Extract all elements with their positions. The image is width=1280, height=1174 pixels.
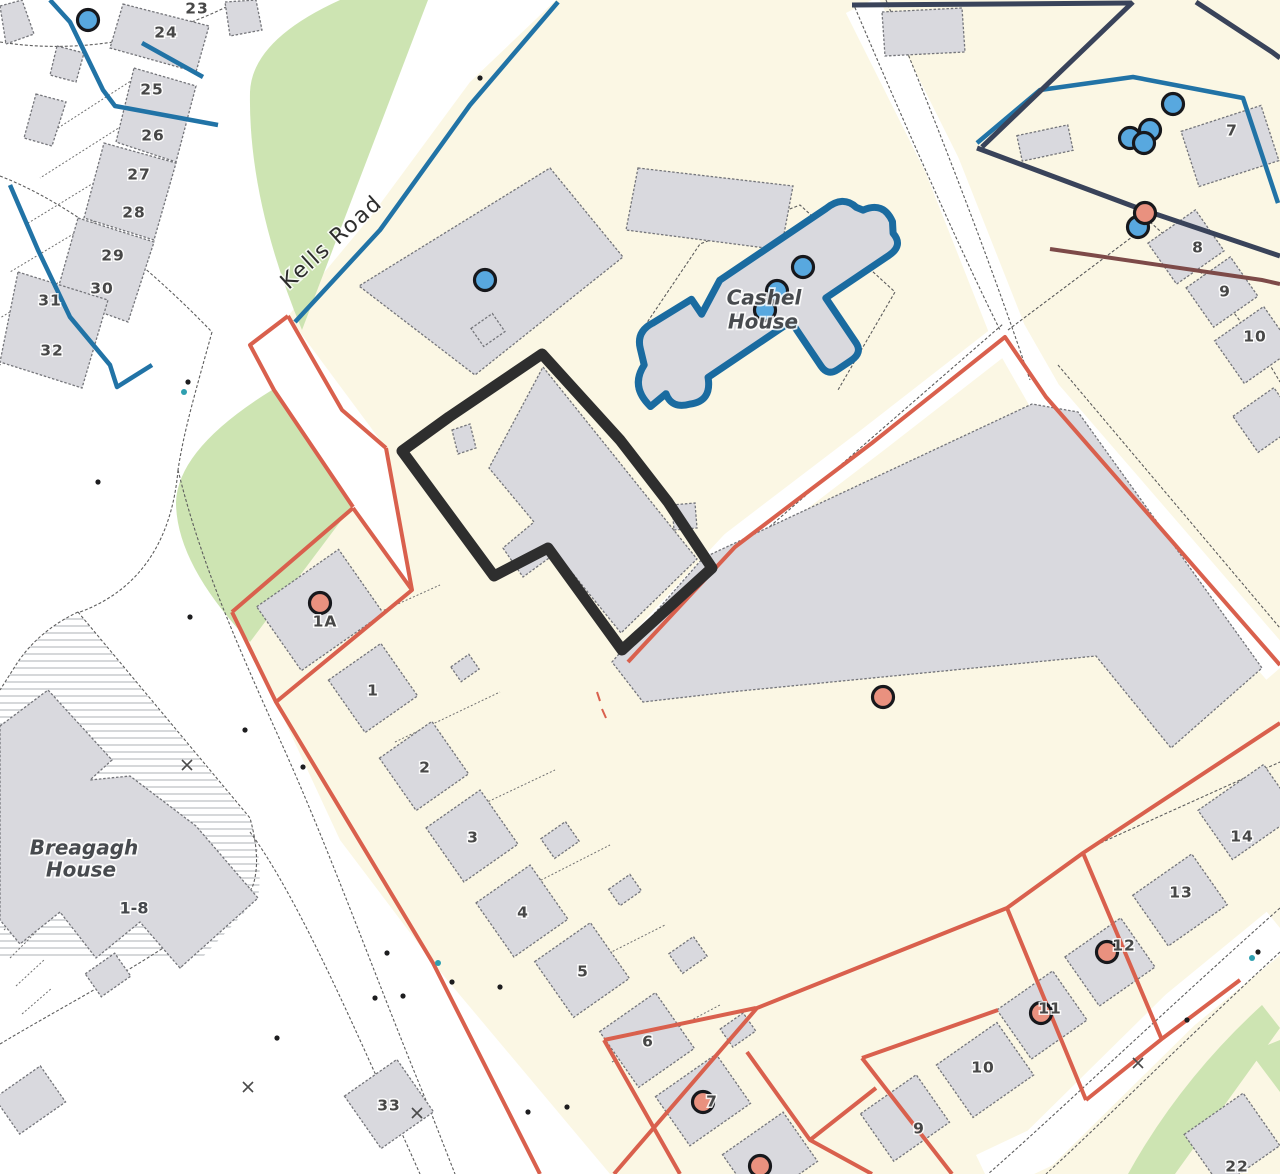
plot-number-label: 29 <box>101 247 125 265</box>
survey-point <box>525 1109 530 1114</box>
orange-dot-marker <box>750 1156 771 1174</box>
breagagh-house-label-line1: Breagagh <box>30 836 139 860</box>
teal-point <box>181 389 187 395</box>
map-canvas: 232425262728293031321A123456733789101413… <box>0 0 1280 1174</box>
plot-number-label: 13 <box>1169 884 1193 902</box>
survey-point <box>1184 1017 1189 1022</box>
plot-number-label: 8 <box>1192 239 1204 257</box>
survey-point <box>384 950 389 955</box>
plot-number-label: 10 <box>1243 328 1267 346</box>
small-building-nw-4 <box>225 0 262 36</box>
survey-point <box>372 995 377 1000</box>
plot-number-label: 2 <box>419 759 431 777</box>
plot-number-label: 10 <box>971 1059 995 1077</box>
survey-point <box>497 984 502 989</box>
survey-point <box>400 993 405 998</box>
building-top-edge <box>882 8 965 56</box>
blue-dot-marker <box>793 257 814 278</box>
plot-number-label: 31 <box>38 292 62 310</box>
plot-number-label: 28 <box>122 204 146 222</box>
blue-dot-marker <box>1134 133 1155 154</box>
survey-point <box>1255 949 1260 954</box>
scanned-site-location-map: 232425262728293031321A123456733789101413… <box>0 0 1280 1174</box>
survey-point <box>242 727 247 732</box>
orange-dot-marker <box>1135 203 1156 224</box>
small-building-nw-3 <box>0 0 34 44</box>
survey-point <box>274 1035 279 1040</box>
plot-number-label: 27 <box>127 166 151 184</box>
plot-number-label: 12 <box>1112 937 1136 955</box>
orange-dot-marker <box>310 593 331 614</box>
survey-point <box>477 75 482 80</box>
orange-dot-marker <box>873 687 894 708</box>
plot-number-label: 30 <box>90 280 114 298</box>
breagagh-house-label-line2: House <box>46 858 116 882</box>
plot-number-label: 9 <box>1219 283 1231 301</box>
plot-number-label: 23 <box>185 0 209 18</box>
small-building-nw-2 <box>24 94 66 146</box>
plot-number-label: 32 <box>40 342 64 360</box>
survey-point <box>564 1104 569 1109</box>
cross-mark <box>243 1082 253 1092</box>
cashel-house-label-line1: Cashel <box>727 286 803 310</box>
survey-point <box>95 479 100 484</box>
breagagh-units-label: 1-8 <box>120 899 149 918</box>
plot-number-label: 26 <box>141 127 165 145</box>
plot-number-label: 5 <box>577 963 589 981</box>
cashel-house-label-line2: House <box>728 310 798 334</box>
plot-number-label: 14 <box>1230 828 1254 846</box>
blue-dot-marker <box>1163 94 1184 115</box>
plot-number-label: 24 <box>154 24 178 42</box>
survey-point <box>185 379 190 384</box>
small-building-nw-1 <box>50 46 84 82</box>
plot-number-label: 11 <box>1038 1000 1062 1018</box>
plot-number-label: 25 <box>140 81 164 99</box>
house-building <box>0 1066 66 1134</box>
teal-point <box>435 960 441 966</box>
blue-dot-marker <box>78 10 99 31</box>
plot-number-label: 7 <box>706 1093 718 1111</box>
plot-number-label: 1A <box>313 613 338 631</box>
survey-point <box>300 764 305 769</box>
plot-number-label: 3 <box>467 829 479 847</box>
plot-number-label: 33 <box>377 1097 401 1115</box>
blue-dot-marker <box>475 270 496 291</box>
survey-point <box>449 979 454 984</box>
survey-point <box>187 614 192 619</box>
plot-number-label: 1 <box>367 682 379 700</box>
plot-number-label: 7 <box>1226 122 1238 140</box>
plot-number-label: 22 <box>1225 1158 1249 1174</box>
plot-number-label: 4 <box>517 904 529 922</box>
plot-number-label: 6 <box>642 1033 654 1051</box>
teal-point <box>1249 955 1255 961</box>
plot-number-label: 9 <box>913 1120 925 1138</box>
